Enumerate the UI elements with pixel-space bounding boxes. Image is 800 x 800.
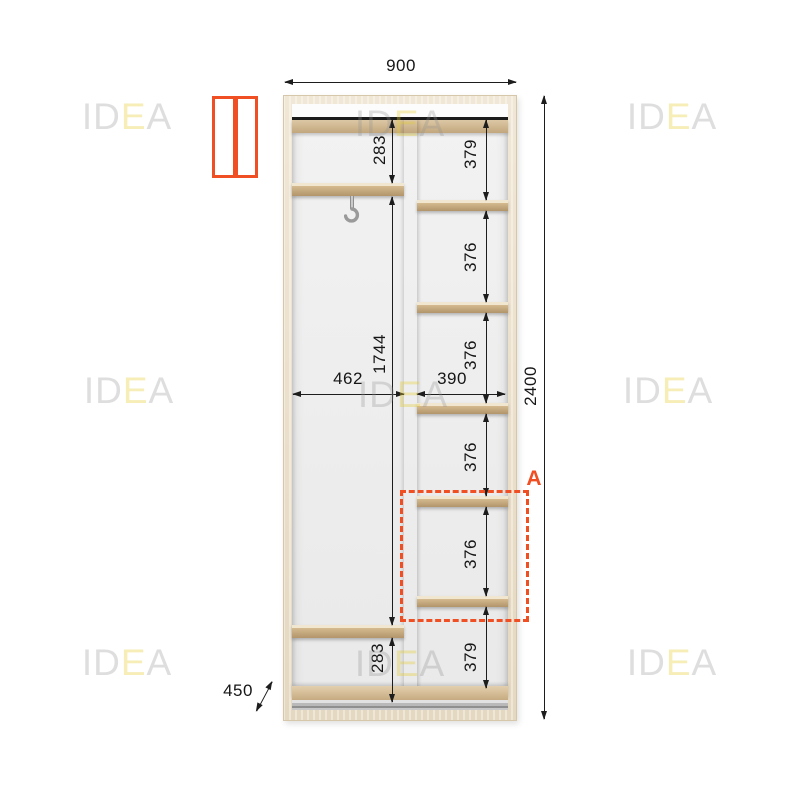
dimension-line-width [285,82,516,83]
watermark-text: A [692,96,718,137]
dim-right-gap-2-label: 376 [461,242,481,272]
wardrobe-dimension-diagram: IDEA IDEA IDEA IDEA IDEA IDEA IDEA IDEA … [0,0,800,800]
dim-right-gap-1-label: 379 [461,139,481,169]
dimension-line-left-top [392,120,393,183]
door-panel [212,96,236,178]
dimension-line-right-gap-2 [486,211,487,302]
watermark-accent-letter: E [121,642,147,683]
right-shelf-3 [417,403,508,414]
watermark-text: ID [82,96,121,137]
dimension-line-right-gap-3 [486,313,487,403]
dimension-line-height [544,96,545,719]
watermark-accent-letter: E [123,370,149,411]
left-bottom-shelf [292,625,404,638]
dimension-line-left-inner-width [293,394,404,395]
top-door-track [292,104,508,120]
idea-watermark: IDEA [82,642,172,684]
dimension-line-depth [256,682,272,712]
watermark-accent-letter: E [121,96,147,137]
idea-watermark: IDEA [84,370,174,412]
watermark-accent-letter: E [662,370,688,411]
dim-width-label: 900 [386,56,416,76]
watermark-text: ID [84,370,123,411]
watermark-text: A [688,370,714,411]
dim-height-label: 2400 [521,366,541,406]
dim-right-width-label: 390 [437,369,467,389]
dimension-line-right-gap-4 [486,414,487,496]
dimension-line-left-middle [392,197,393,625]
dim-left-bottom-label: 283 [368,643,388,673]
watermark-text: A [147,96,173,137]
dim-left-top-label: 283 [370,135,390,165]
dim-depth-label: 450 [223,681,253,701]
wardrobe-cabinet [283,95,517,721]
watermark-text: ID [82,642,121,683]
idea-watermark: IDEA [627,96,717,138]
bottom-panel [292,686,508,700]
dim-right-gap-6-label: 379 [461,642,481,672]
left-top-shelf [292,183,404,196]
dim-left-width-label: 462 [333,369,363,389]
right-shelf-1 [417,200,508,211]
dimension-line-right-gap-1 [486,120,487,200]
dimension-line-right-inner-width [417,394,505,395]
sliding-doors-icon [212,96,258,178]
dim-left-middle-label: 1744 [370,334,390,374]
watermark-accent-letter: E [666,642,692,683]
idea-watermark: IDEA [82,96,172,138]
dimension-line-left-bottom [392,638,393,702]
door-panel [235,96,259,178]
watermark-text: ID [627,96,666,137]
clothes-rail-hook-icon [344,196,360,231]
idea-watermark: IDEA [627,642,717,684]
dim-right-gap-4-label: 376 [461,442,481,472]
watermark-accent-letter: E [666,96,692,137]
right-shelf-2 [417,302,508,313]
section-a-highlight-box [400,490,529,622]
watermark-text: ID [627,642,666,683]
idea-watermark: IDEA [623,370,713,412]
watermark-text: A [149,370,175,411]
section-a-label: A [526,467,541,491]
watermark-text: ID [623,370,662,411]
watermark-text: A [692,642,718,683]
watermark-text: A [147,642,173,683]
bottom-door-track [292,700,508,710]
dim-right-gap-3-label: 376 [461,340,481,370]
top-rail [292,120,508,133]
